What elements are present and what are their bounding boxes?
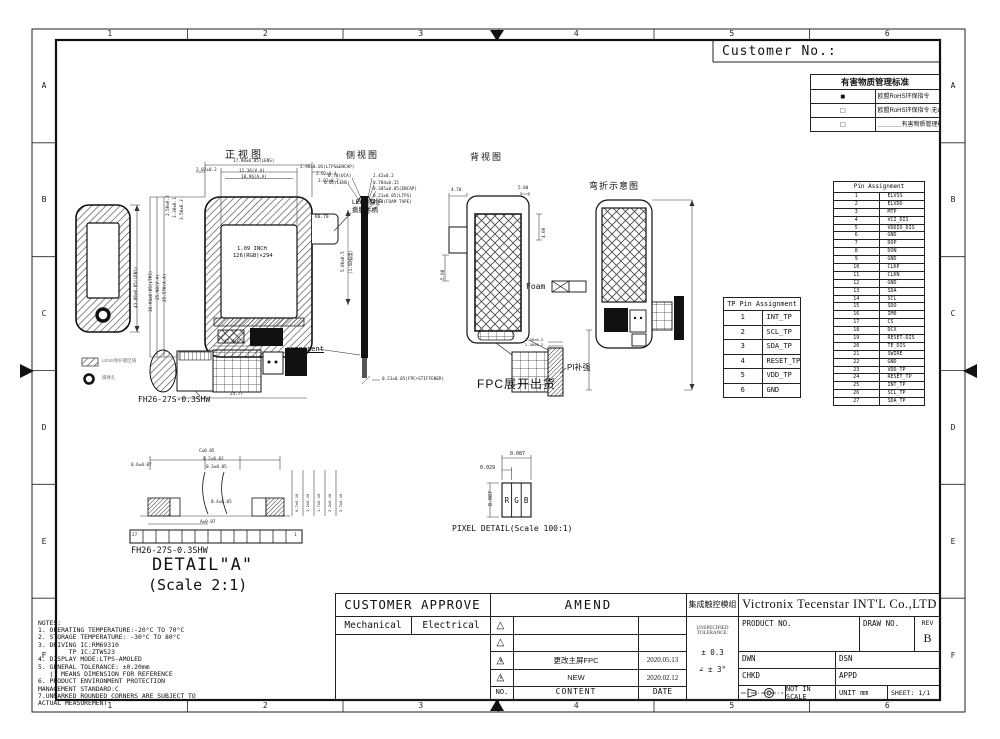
customer-approve-header: CUSTOMER APPROVE [335,593,490,617]
phone-mock-view [76,205,140,384]
sheet-label: SHEET: 1/1 [888,689,930,697]
dim: 1.7±0.10 [316,494,321,512]
pin-row: 26 SCL_TP [834,390,925,398]
customer-no-label: Customer No.: [722,44,837,59]
grid-letter: C [941,257,965,371]
pin-name: CLKN [879,271,925,279]
company-name: Victronix Tecenstar INT'L Co.,LTD [742,597,937,612]
grid-number: 3 [343,701,499,712]
dsn-label: DSN [836,652,940,663]
dim: (1.5D弧度) [348,250,354,274]
product-no-label: PRODUCT NO. [739,617,859,628]
tp-pin-name: GND [762,383,801,398]
pin-row: 25 INT_TP [834,382,925,390]
amend-footer: NO. CONTENT DATE [490,683,686,700]
amend-row [491,635,686,653]
dim: 25.578(A.A) [163,274,168,302]
rohs-rows: ■ 欧盟RoHS环保指令 □ 欧盟RoHS环保指令·无卤素要求 □ ＿＿＿＿有害… [811,90,940,132]
pin-row: 27 SDA_TP [834,398,925,406]
amend-footer-content: CONTENT [514,683,639,700]
amend-content-cell [514,617,639,634]
pin-name: RESET_TP [879,374,925,382]
pin-row: 21 SWIRE [834,350,925,358]
tp-pin-table-title: TP Pin Assignment [724,298,801,311]
dim-radius: R0.70 [315,215,329,220]
draw-no-cell: DRAW NO. [859,617,914,652]
tp-pin-row: 5 VDD_TP [724,369,801,384]
chkd-label: CHKD [739,669,835,680]
module-type-label: 集成触控模组 [689,599,737,610]
pin-row: 20 TE_DIS [834,342,925,350]
dwn-cell: DWN [738,652,835,669]
revision-triangle-icon: B [497,655,508,666]
rohs-title: 有害物质管理标准 [811,75,940,90]
pin-row: 23 VDD_TP [834,366,925,374]
dim: 0.087 [488,491,494,506]
amend-footer-date: DATE [639,683,686,700]
appd-cell: APPD [835,669,940,686]
pin-name: GND [879,279,925,287]
pin-name: MTP [879,208,925,216]
appd-label: APPD [836,669,940,680]
dim: C±0.05 [199,449,215,454]
amend-title: AMEND [565,597,613,612]
pin-number: 11 [834,271,880,279]
dim: 5.08 [441,270,446,280]
dim: 0.70(OCA) [328,174,351,179]
approve-electrical-cell: Electrical [412,617,490,635]
pin-name: CLKP [879,264,925,272]
tp-pin-name: VDD_TP [762,369,801,384]
tp-pin-name: RESET_TP [762,354,801,369]
component-label: component [286,345,324,353]
side-dims-right: 2.42±0.20.784±0.150.305±0.05(ENCAP)0.21±… [373,174,463,207]
draw-no-label: DRAW NO. [860,617,914,628]
pin-number: 14 [834,295,880,303]
dim: 2.96±0.05(LTPS&ENCAP) [300,165,354,170]
amend-row: B 更改主屏FPC 2020.05.13 [491,652,686,670]
pin-name: SDA [879,287,925,295]
pin-name: VCI_DIS [879,216,925,224]
grid-letter: E [32,484,56,598]
dim: 0.029 [480,465,495,471]
legend-hole-label: 摄像孔 [102,375,116,381]
grid-number: 4 [499,701,655,712]
pin-number: 6 [834,232,880,240]
amend-mark-cell [491,617,514,634]
dim: 0.305±0.05(ENCAP) [373,187,463,194]
legend-hatch-label: LENS保护膜区域 [102,358,136,364]
tp-pin-row: 2 SCL_TP [724,325,801,340]
pin-name: SWIRE [879,350,925,358]
pin-row: 12 GND [834,279,925,287]
pin-row: 2 ELVDD [834,200,925,208]
pin-name: ELVSS [879,193,925,201]
rohs-row: □ ＿＿＿＿有害物质管理标准 第＿＿版 [811,118,940,132]
pin-row: 17 CS [834,319,925,327]
pin-name: ELVDD [879,200,925,208]
dim: 0.05(LENS) [324,181,350,186]
pin-number: 27 [834,398,880,406]
pin-row: 11 CLKN [834,271,925,279]
pin-table-title: Pin Assignment [834,182,925,193]
rohs-checkbox-icon: □ [811,104,876,118]
dwn-label: DWN [739,652,835,663]
pin-row: 4 VCI_DIS [834,216,925,224]
amend-row [491,617,686,635]
dim: 5.80±0.5 [341,251,346,272]
amend-content-cell: 更改主屏FPC [514,652,639,669]
pin-row: 14 SCL [834,295,925,303]
dim: 10.96(A.A) [241,175,267,180]
fpc-view-title: FPC展开出货 [477,375,556,392]
front-connector-label: FH26-27S-0.3SHW [138,395,210,404]
pin-row: 9 GND [834,256,925,264]
rohs-checkbox-icon: □ [811,118,876,132]
sheet-cell: SHEET: 1/1 [887,686,940,700]
unit-cell: UNIT mm [835,686,887,700]
pin-name: INT_TP [879,382,925,390]
pin-number: 21 [834,350,880,358]
pin-row: 24 RESET_TP [834,374,925,382]
tp-pin-name: SCL_TP [762,325,801,340]
dim: 36.94±0.05(LTPS) [149,271,154,312]
grid-letters-right: ABCDEF [941,29,965,712]
pin-number: 15 [834,303,880,311]
grid-letter: B [32,143,56,257]
pin-name: SCL [879,295,925,303]
grid-letter: F [941,598,965,712]
pin-number: 18 [834,327,880,335]
display-size-label: 1.09 INCH [237,246,267,252]
dim: 0.13(FOAM TAPE) [373,200,463,207]
dim: 0.087 [510,451,525,457]
dim: 2.42±0.2 [373,174,463,181]
pin-name: IM0 [879,311,925,319]
dim: 2.2±0.10 [327,494,332,512]
detail-a-scale: (Scale 2:1) [148,576,247,594]
pin-number: 10 [834,264,880,272]
grid-letter: E [941,484,965,598]
projection-symbol [740,687,784,699]
grid-numbers-top: 123456 [32,29,965,40]
pin-number: 3 [834,208,880,216]
tp-pin-number: 6 [724,383,763,398]
projection-symbol-cell [738,686,785,700]
rohs-row: □ 欧盟RoHS环保指令·无卤素要求 [811,104,940,118]
note-line: ACTUAL MEASUREMENT [38,700,196,707]
rohs-row-label: 欧盟RoHS环保指令·无卤素要求 [875,104,940,118]
dim: 1.2±0.10 [305,494,310,512]
pin-name: DCX [879,327,925,335]
grid-number: 3 [343,29,499,40]
tp-pin-table: TP Pin Assignment 1 INT_TP 2 SCL_TP 3 SD… [723,297,801,398]
pin-number: 24 [834,374,880,382]
rohs-row-label: ＿＿＿＿有害物质管理标准 第＿＿版 [875,118,940,132]
amend-rows: B 更改主屏FPC 2020.05.13 A NEW 2020.02.12 [490,617,686,683]
dim: 2.02±0.2 [196,168,217,173]
module-type-cell: 集成触控模组 [686,593,738,617]
grid-letter: D [941,370,965,484]
amend-header: AMEND [490,593,686,617]
dim: 24.77 [230,392,243,397]
back-view-title: 背视图 [470,150,503,163]
dim: A±0.07 [200,520,216,525]
tp-pin-row: 4 RESET_TP [724,354,801,369]
customer-approve-title: CUSTOMER APPROVE [344,597,480,612]
pin-number: 22 [834,358,880,366]
tp-pin-number: 5 [724,369,763,384]
subpixel-letter: B [521,483,531,517]
rohs-row-label: 欧盟RoHS环保指令 [875,90,940,104]
display-res-label: 126(RGB)×294 [233,253,273,259]
foam-label: Foam [526,282,545,291]
pin-row: 10 CLKP [834,264,925,272]
pin-number: 19 [834,335,880,343]
dim: 43.80±0.05(LENS) [134,267,139,308]
pin-name: VDDIO_DIS [879,224,925,232]
detail-connector-label: FH26-27S-0.3SHW [131,546,208,556]
pin-number-left: 27 [132,533,137,538]
pin-name: RESET-DIS [879,335,925,343]
tp-pin-rows: 1 INT_TP 2 SCL_TP 3 SDA_TP 4 RESET_TP [724,311,801,398]
dim: 4.70 [451,188,461,193]
grid-number: 4 [499,29,655,40]
pin-number: 7 [834,240,880,248]
tp-pin-row: 1 INT_TP [724,311,801,326]
pin-number: 4 [834,216,880,224]
pin-number: 16 [834,311,880,319]
tp-pin-name: SDA_TP [762,340,801,355]
dim: 0.2±0.02 [203,457,224,462]
pin-row: 19 RESET-DIS [834,335,925,343]
notes-block: NOTES:1. OPERATING TEMPERATURE:-20°C TO … [38,598,196,707]
pin-number-right: 1 [294,533,297,538]
grid-number: 2 [188,701,344,712]
pin-name: GND [879,232,925,240]
pin-row: 13 SDA [834,287,925,295]
grid-number: 5 [654,29,810,40]
pin-number: 26 [834,390,880,398]
amend-content-cell [514,635,639,652]
pixel-subpixels: RGB [502,483,531,517]
grid-letter: C [32,257,56,371]
revision-letter: A [500,676,503,681]
dim: 0.7±0.10 [294,494,299,512]
revision-triangle-icon [497,620,508,631]
dim: 0.3±0.05 [206,465,227,470]
revision-triangle-icon [497,637,508,648]
pin-name: DON [879,248,925,256]
pi-stiffener-label: PI补强 [567,362,591,373]
pin-number: 9 [834,256,880,264]
dim: 0.21±0.05(FPC+STIFFENER) [382,377,444,382]
approve-electrical-label: Electrical [422,620,479,631]
rohs-checkbox-icon: ■ [811,90,876,104]
pin-name: GND [879,358,925,366]
grid-number: 2 [188,29,344,40]
pin-name: SDO [879,303,925,311]
pin-table: Pin Assignment 1 ELVSS 2 ELVDD 3 MTP [833,181,925,406]
pin-row: 8 DON [834,248,925,256]
pixel-detail-title: PIXEL DETAIL(Scale 100:1) [452,524,572,533]
dim: 0.6±0.07 [131,463,152,468]
side-view-title: 侧视图 [346,148,379,161]
pin-name: TE_DIS [879,342,925,350]
rev-cell: REV B [914,617,940,652]
tp-pin-name: INT_TP [762,311,801,326]
pin-number: 2 [834,200,880,208]
tolerance-value: ± 0.3 [687,648,738,657]
pin-name: DOP [879,240,925,248]
rohs-row: ■ 欧盟RoHS环保指令 [811,90,940,104]
pin-row: 7 DOP [834,240,925,248]
dim: 5.00 [518,186,528,191]
dim: 2.40±0.2 [525,342,543,347]
dim: 11.36(V.A) [239,169,265,174]
unit-label: UNIT mm [836,689,869,697]
chkd-cell: CHKD [738,669,835,686]
amend-footer-no: NO. [491,683,514,700]
dim: 2.7±0.10 [338,494,343,512]
company-cell: Victronix Tecenstar INT'L Co.,LTD [738,593,940,617]
dsn-cell: DSN [835,652,940,669]
pin-number: 12 [834,279,880,287]
pin-row: 22 GND [834,358,925,366]
engineering-drawing-sheet: 123456 123456 ABCDEF ABCDEF Customer No.… [0,0,1000,739]
revision-triangle-icon: A [497,672,508,683]
rohs-table: 有害物质管理标准 ■ 欧盟RoHS环保指令 □ 欧盟RoHS环保指令·无卤素要求… [810,74,940,132]
approve-mechanical-cell: Mechanical [335,617,412,635]
bend-view [586,200,695,390]
dim: 4.00 [542,228,547,238]
tp-pin-row: 3 SDA_TP [724,340,801,355]
product-no-cell: PRODUCT NO. [738,617,859,652]
pin-number: 5 [834,224,880,232]
pin-name: VDD_TP [879,366,925,374]
grid-letter: A [941,29,965,143]
amend-mark-cell: B [491,652,514,669]
pin-number: 13 [834,287,880,295]
grid-letter: D [32,370,56,484]
subpixel-letter: G [512,483,522,517]
pin-name: SDA_TP [879,398,925,406]
pin-name: SCL_TP [879,390,925,398]
dim: 25.98(V.A) [156,274,161,300]
amend-date-cell [639,635,686,652]
amend-date-cell [639,617,686,634]
pin-row: 1 ELVSS [834,193,925,201]
tolerance-angle: ∠ ± 3° [687,665,738,674]
pin-row: 15 SDO [834,303,925,311]
tolerance-cell: UNSPECIFIED TOLERANCE: ± 0.3 ∠ ± 3° [686,617,738,700]
dim: 0.4±0.05 [211,500,232,505]
back-view [442,192,586,343]
grid-number: 5 [654,701,810,712]
scale-label: NOT IN SCALE [786,685,835,701]
pin-number: 1 [834,193,880,201]
pin-name: GND [879,256,925,264]
pin-row: 18 DCX [834,327,925,335]
pin-number: 8 [834,248,880,256]
dim: 2.50±0.2 [166,195,171,216]
grid-letter: A [32,29,56,143]
tp-pin-number: 4 [724,354,763,369]
pin-number: 23 [834,366,880,374]
amend-date-cell: 2020.05.13 [639,652,686,669]
detail-a-title: DETAIL"A" [152,555,253,575]
grid-letter: B [941,143,965,257]
dim: 17.80±0.05(LENS) [233,159,274,164]
pin-number: 17 [834,319,880,327]
amend-mark-cell [491,635,514,652]
subpixel-letter: R [502,483,512,517]
pin-number: 20 [834,342,880,350]
pin-row: 6 GND [834,232,925,240]
pin-row: 16 IM0 [834,311,925,319]
pin-rows: 1 ELVSS 2 ELVDD 3 MTP 4 VCI_DIS [834,193,925,406]
tolerance-line2: TOLERANCE: [687,631,738,636]
dim: 3.50±0.2 [180,199,185,220]
tp-pin-number: 1 [724,311,763,326]
approve-mechanical-label: Mechanical [344,620,401,631]
scale-cell: NOT IN SCALE [785,686,835,700]
bend-view-title: 弯折示意图 [589,179,639,192]
front-view [150,162,360,398]
revision-letter: B [500,659,503,664]
pin-row: 5 VDDIO_DIS [834,224,925,232]
pin-row: 3 MTP [834,208,925,216]
rev-value: B [915,631,940,646]
dim: 12.0±0.2 [224,340,245,345]
tp-pin-number: 3 [724,340,763,355]
dim: 3.30±0.1 [173,197,178,218]
tp-pin-number: 2 [724,325,763,340]
rev-label: REV [915,617,940,627]
tp-pin-row: 6 GND [724,383,801,398]
pin-name: CS [879,319,925,327]
pin-number: 25 [834,382,880,390]
